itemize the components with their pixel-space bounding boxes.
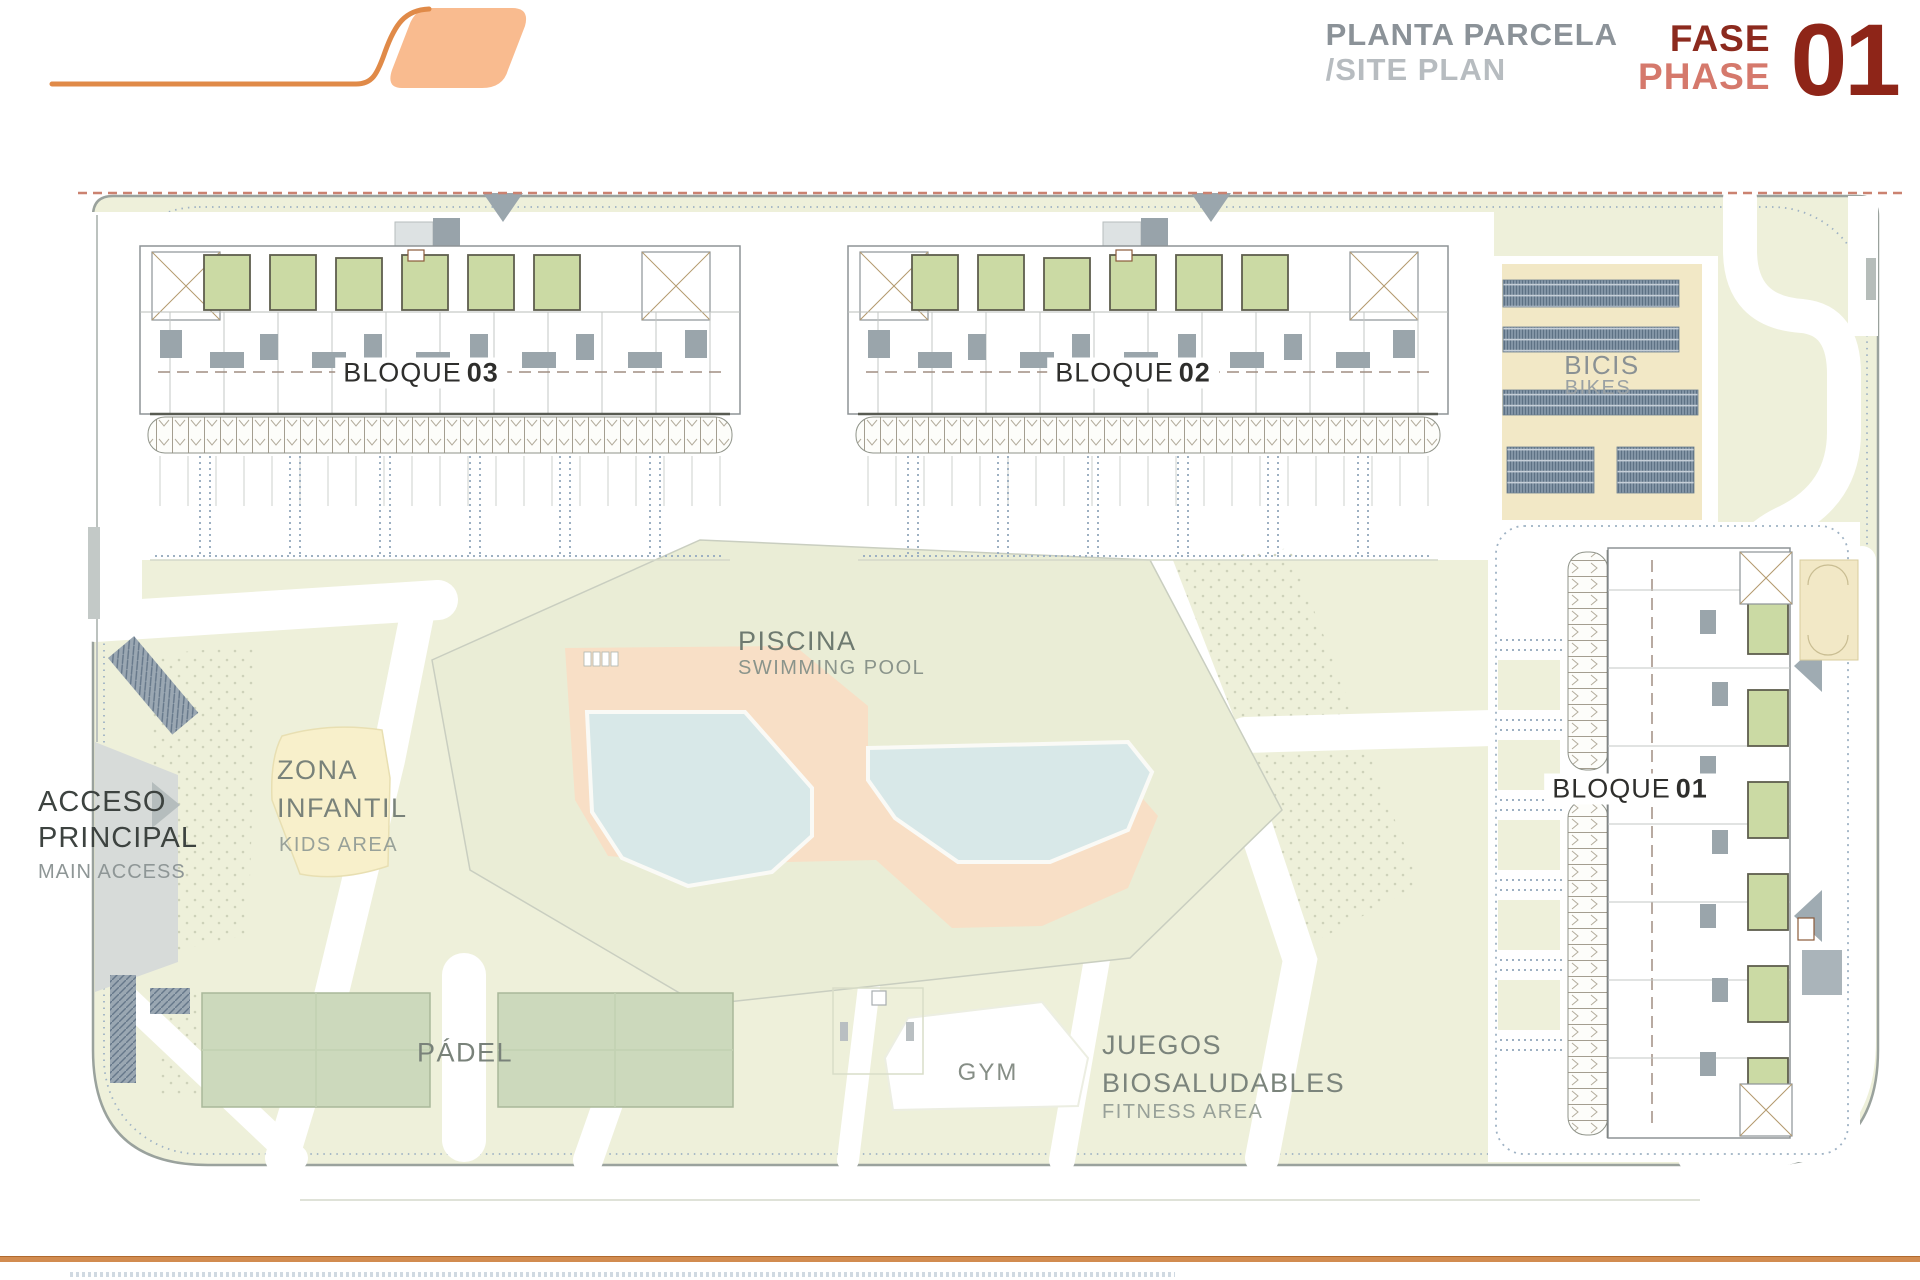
page-header: PLANTA PARCELA /SITE PLAN FASE PHASE 01 [1326, 18, 1898, 102]
access-label-es2: PRINCIPAL [38, 824, 198, 853]
drawing-title: PLANTA PARCELA /SITE PLAN [1326, 18, 1618, 87]
phase-number: 01 [1791, 20, 1898, 102]
kids-label-en: KIDS AREA [279, 835, 398, 855]
brand-logo [0, 0, 560, 100]
site-plan-page: PLANTA PARCELA /SITE PLAN FASE PHASE 01 … [0, 0, 1920, 1280]
footer-microtext-strip [70, 1272, 1175, 1277]
padel-label: PÁDEL [417, 1040, 513, 1067]
pool-label-en: SWIMMING POOL [738, 658, 925, 678]
footer-orange-rule [0, 1256, 1920, 1262]
bikes-label-es: BICIS [1564, 352, 1639, 378]
left-edge-detail [88, 527, 100, 619]
bloque-01-label: BLOQUE01 [1544, 774, 1716, 805]
drawing-title-en: /SITE PLAN [1326, 53, 1618, 88]
kids-label-es1: ZONA [277, 757, 358, 784]
corner-detail [1866, 258, 1876, 300]
fitness-label-es1: JUEGOS [1102, 1032, 1222, 1059]
phase-label-en: PHASE [1638, 58, 1770, 96]
access-label-en: MAIN ACCESS [38, 862, 186, 882]
access-label-es1: ACCESO [38, 788, 166, 817]
fitness-label-es2: BIOSALUDABLES [1102, 1070, 1345, 1097]
bloque-03-label: BLOQUE03 [335, 358, 507, 389]
parking-hatch-strip [150, 988, 190, 1014]
fitness-label-en: FITNESS AREA [1102, 1102, 1263, 1122]
logo-shape [390, 8, 526, 88]
pool-label-es: PISCINA [738, 628, 857, 655]
kids-label-es2: INFANTIL [277, 795, 408, 822]
phase-label: FASE PHASE [1638, 20, 1770, 95]
drawing-title-es: PLANTA PARCELA [1326, 18, 1618, 53]
bloque-02-label: BLOQUE02 [1047, 358, 1219, 389]
site-plan-drawing [0, 0, 1920, 1280]
service-block [1802, 950, 1842, 995]
bikes-label-en: BIKES [1565, 378, 1631, 398]
gym-label: GYM [958, 1061, 1019, 1085]
logo-swoosh [52, 9, 429, 84]
utility-room [1800, 560, 1858, 660]
parking-hatch-strip [110, 975, 136, 1083]
phase-label-es: FASE [1638, 20, 1770, 58]
